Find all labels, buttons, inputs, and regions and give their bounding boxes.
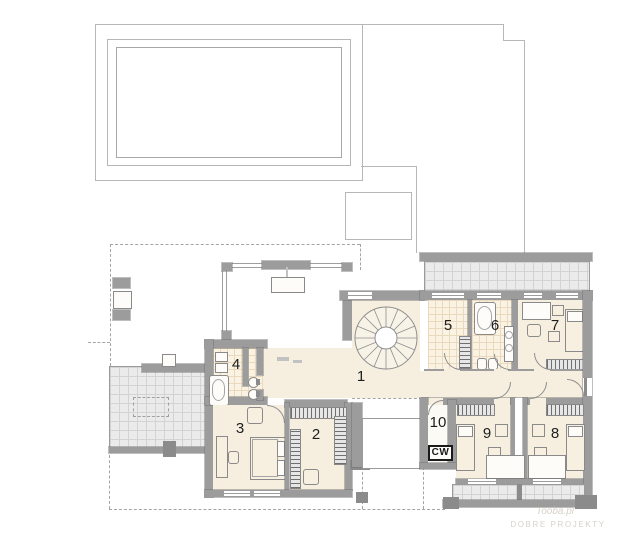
sink-icon [505,331,513,339]
pillow [567,311,583,322]
shelf [532,424,545,437]
bench-below [113,278,130,288]
balcony-pier [443,497,459,509]
desk [216,436,228,478]
pool-basin [116,47,342,158]
room-label-2: 2 [307,427,325,442]
window [224,491,250,496]
console-mark [277,357,289,361]
watermark-logo: Tooba.pl [505,506,605,517]
boundary-line [524,40,525,255]
sink-icon [215,363,228,373]
outbuilding [345,192,412,240]
window [477,293,501,298]
wall [205,340,213,497]
boundary-line [361,24,503,25]
nightstand [552,305,564,316]
wall [583,291,592,508]
room-label-1: 1 [352,369,370,384]
wall [257,348,263,375]
console-mark [293,360,302,363]
boundary-line [361,166,416,167]
dashed-outline [109,509,445,510]
dashed-outline [360,244,361,270]
window [524,293,542,298]
pillow [568,426,583,437]
bench-below [113,310,130,320]
chimney [162,354,176,367]
table-below [113,291,132,309]
dashed-outline [88,342,110,343]
terrace-post [163,441,176,457]
dashed-void-edge [352,398,422,399]
bidet-tank [256,391,260,397]
wardrobe-shelves [457,404,495,416]
pillow [277,441,285,457]
pillow [458,426,473,437]
wardrobe-shelves [546,404,584,416]
door-gap [494,398,510,405]
room-label-5: 5 [439,318,457,333]
dashed-outline [110,244,360,245]
wall-pier [222,331,231,340]
sink-icon [215,352,228,362]
dashed-outline [110,244,111,366]
wardrobe-shelves [290,429,301,489]
terrace-wall [420,253,592,261]
room-label-7: 7 [546,318,564,333]
window-wall [222,266,227,340]
wall [420,398,428,468]
balcony-post [517,484,522,500]
wall-stub [356,492,368,503]
floor-vestibule [263,348,352,398]
window [432,293,464,298]
toilet-tank [256,379,260,385]
terrace-top [424,261,590,293]
chair [527,324,541,337]
spiral-staircase [352,302,420,372]
dashed-skylight [133,397,169,417]
mattress [252,439,278,477]
chair [228,451,239,464]
wall [285,403,289,490]
window [556,293,578,298]
door-leaf [584,378,587,396]
dashed-outline [423,467,424,509]
ceiling-fixture [271,277,305,293]
boundary-line [503,24,504,41]
door-gap [530,398,546,405]
desk [486,455,525,479]
sink-icon [505,344,513,352]
dashed-outline [109,450,110,509]
bathtub-basin [212,379,225,401]
terrace-wall [109,447,205,453]
boundary-line [503,40,524,41]
desk [528,455,566,479]
wall [285,400,347,407]
window [348,292,372,299]
room-label-10: 10 [426,415,450,430]
watermark-text: DOBRE PROJEKTY [488,520,628,529]
stool [303,469,319,485]
wall-pier [342,263,352,271]
room-label-3: 3 [231,421,249,436]
void-above-entrance [362,418,422,469]
room-label-8: 8 [546,426,564,441]
wall [420,463,456,469]
window [254,491,280,496]
room-label-6: 6 [486,318,504,333]
wall-pier [222,263,232,271]
boundary-line [416,166,417,253]
floor-plan: 1 4 3 2 [0,0,638,556]
pillow [277,460,285,476]
cabinet [247,407,263,424]
wardrobe-shelves [334,416,347,465]
wall [352,403,362,467]
room-label-4: 4 [228,357,244,372]
shelf [495,424,508,437]
cw-tag: CW [428,445,453,461]
room-label-9: 9 [478,426,496,441]
wall [205,340,267,348]
